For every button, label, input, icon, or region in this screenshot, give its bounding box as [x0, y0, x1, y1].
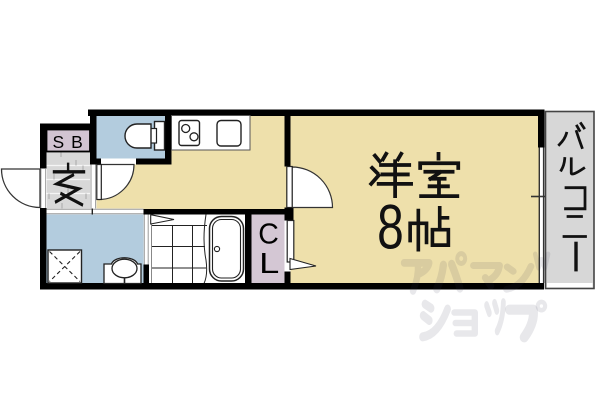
svg-text:8: 8: [377, 191, 404, 262]
svg-text:B: B: [71, 132, 83, 152]
svg-text:S: S: [53, 132, 65, 152]
svg-text:L: L: [259, 246, 279, 279]
